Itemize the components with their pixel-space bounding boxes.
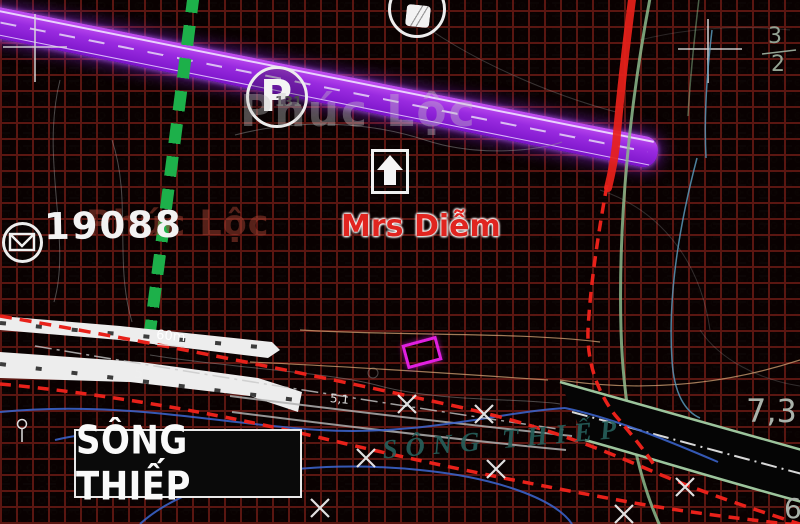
owner-label: Mrs Diễm <box>341 209 501 244</box>
road-width-label: 60m <box>155 328 186 347</box>
dimension-label: 5,1 <box>329 391 349 407</box>
fraction-numerator: 3 <box>768 24 782 49</box>
river-name-box: SÔNG THIẾP <box>74 429 302 498</box>
elevation-label: 7,3 <box>746 392 797 430</box>
river-name-box-label: SÔNG THIẾP <box>76 418 300 509</box>
plot-number-label: 19088 <box>44 203 183 248</box>
cadastral-map: P 131 Phúc Lộc Phúc Lộc 19088 Mrs Diễm 6… <box>0 0 800 524</box>
envelope-icon <box>2 222 43 263</box>
arrow-up-glyph <box>374 152 406 191</box>
envelope-glyph <box>5 225 39 259</box>
square-marker-glyph <box>405 4 431 28</box>
dimension-label: 5 <box>133 364 144 383</box>
arrow-up-icon <box>371 149 409 194</box>
fraction-denominator: 2 <box>771 52 785 77</box>
watermark: Phúc Lộc <box>240 86 477 137</box>
elevation-label: 6 <box>784 492 800 524</box>
